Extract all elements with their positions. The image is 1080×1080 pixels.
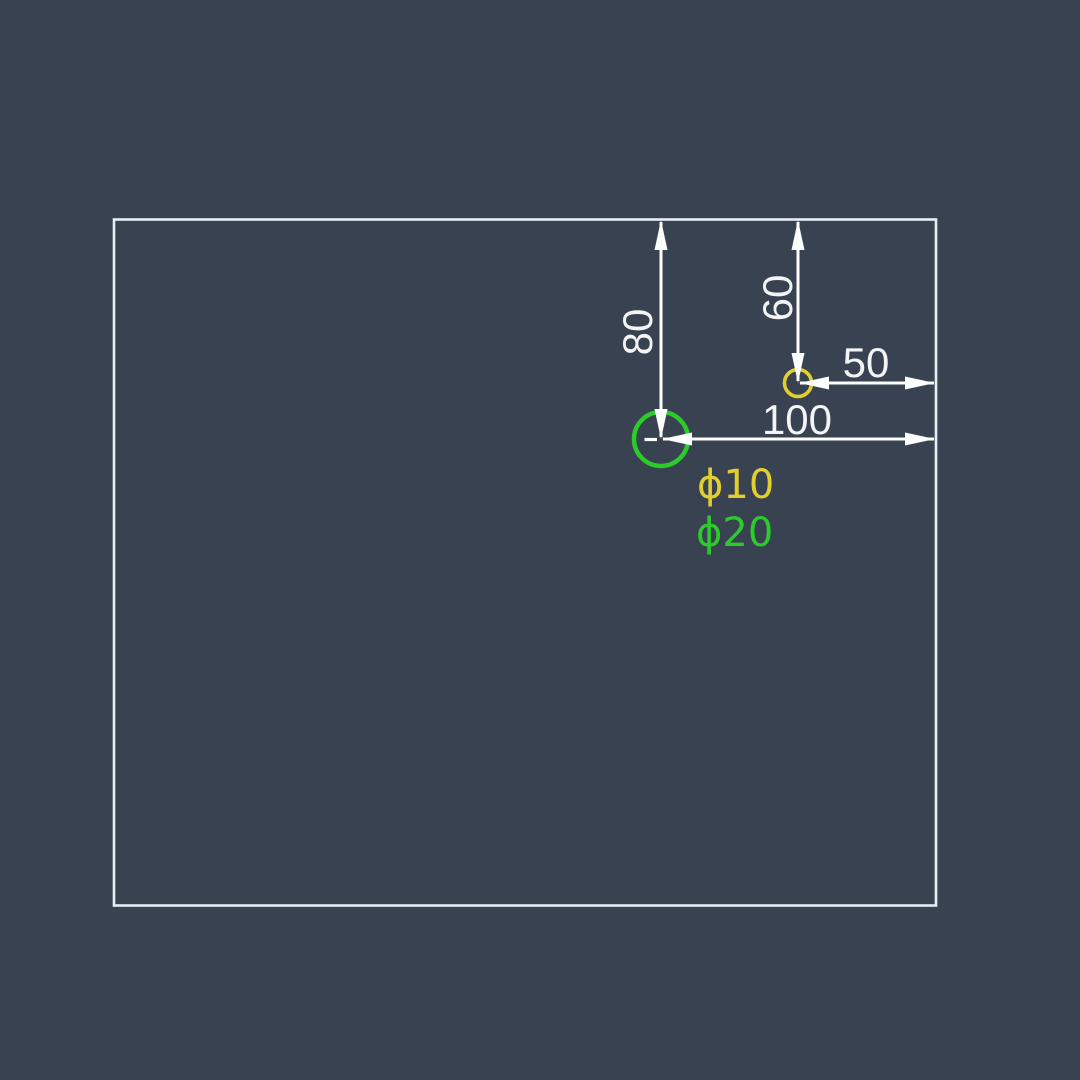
dimension-label[interactable]: 100	[762, 396, 832, 443]
arrowhead-down-icon	[792, 353, 805, 383]
dimension-label[interactable]: 50	[843, 339, 890, 386]
arrowhead-right-icon	[905, 433, 935, 446]
cad-canvas[interactable]: 80 60 50 100 ϕ10 ϕ20	[0, 0, 1080, 1080]
dimension-80[interactable]: 80	[614, 220, 668, 439]
arrowhead-up-icon	[792, 220, 805, 250]
dimension-100[interactable]: 100	[662, 396, 935, 446]
cad-viewport[interactable]: 80 60 50 100 ϕ10 ϕ20	[0, 0, 1080, 1080]
arrowhead-left-icon	[799, 377, 829, 390]
arrowhead-right-icon	[905, 377, 935, 390]
arrowhead-up-icon	[655, 220, 668, 250]
dimension-50[interactable]: 50	[799, 339, 935, 390]
hole-diameter-label-small[interactable]: ϕ10	[697, 462, 774, 508]
arrowhead-left-icon	[662, 433, 692, 446]
part-outline-rectangle[interactable]	[114, 220, 936, 906]
hole-diameter-label-large[interactable]: ϕ20	[696, 510, 773, 556]
dimension-60[interactable]: 60	[754, 220, 805, 383]
dimension-label[interactable]: 80	[614, 309, 661, 356]
arrowhead-down-icon	[655, 409, 668, 439]
dimension-label[interactable]: 60	[754, 275, 801, 322]
